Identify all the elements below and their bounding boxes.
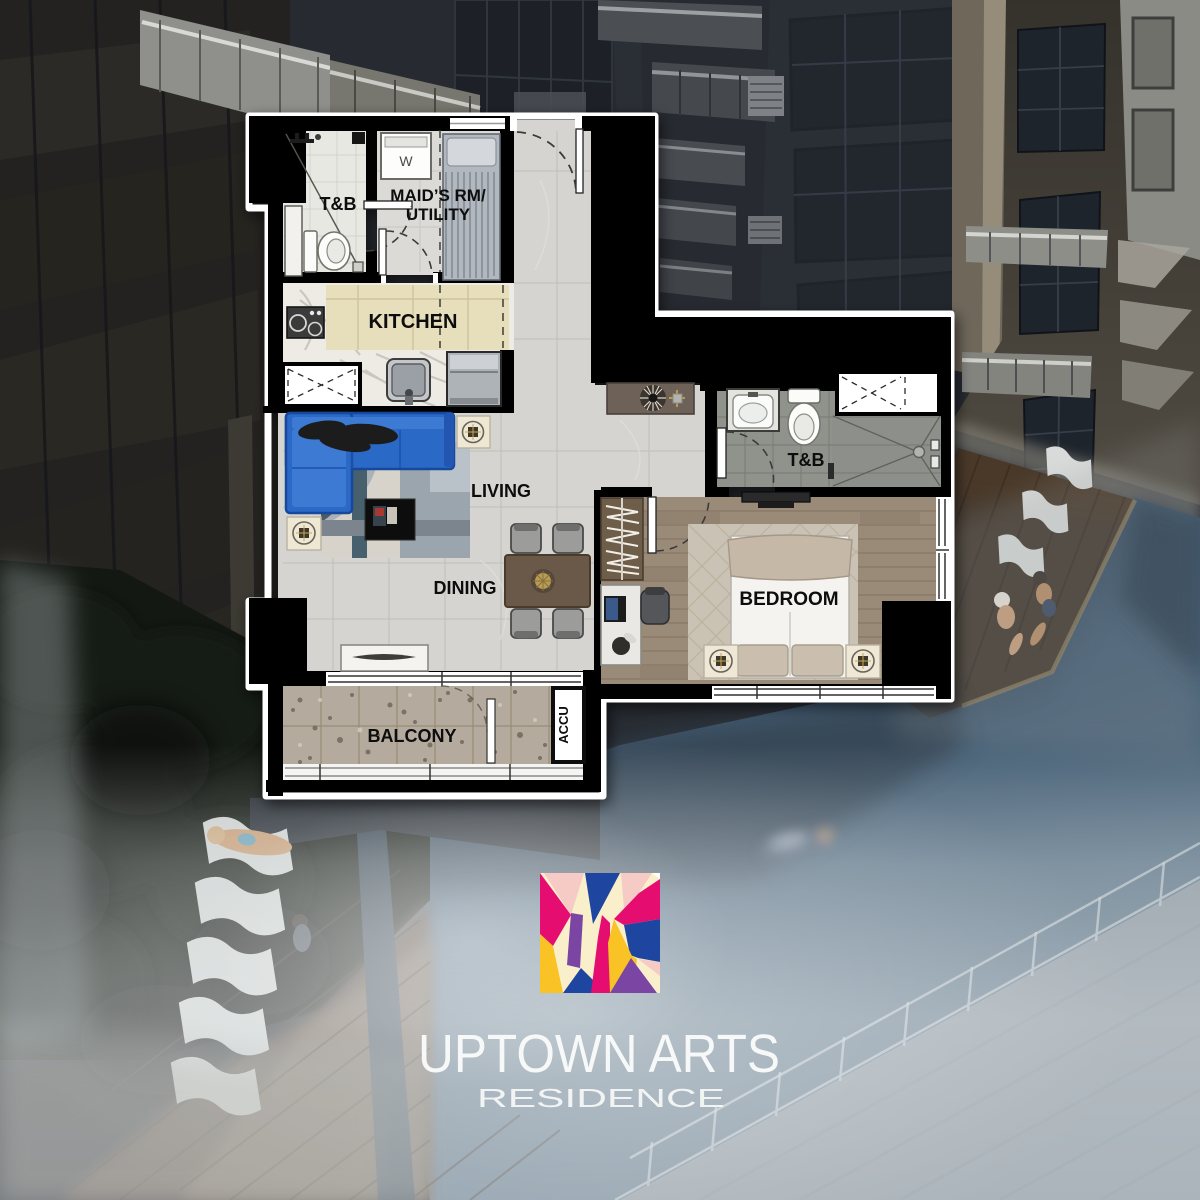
svg-text:BEDROOM: BEDROOM [739, 589, 838, 610]
svg-text:LIVING: LIVING [471, 481, 531, 501]
svg-text:MAID’S RM/: MAID’S RM/ [390, 186, 486, 205]
svg-text:ACCU: ACCU [556, 706, 571, 744]
svg-text:BALCONY: BALCONY [368, 726, 457, 746]
svg-text:T&B: T&B [320, 194, 357, 214]
svg-text:RESIDENCE: RESIDENCE [477, 1083, 725, 1113]
svg-text:T&B: T&B [788, 450, 825, 470]
svg-text:KITCHEN: KITCHEN [369, 311, 458, 333]
svg-text:UTILITY: UTILITY [406, 205, 471, 224]
svg-text:UPTOWN ARTS: UPTOWN ARTS [418, 1024, 780, 1084]
svg-text:W: W [399, 153, 413, 169]
svg-text:DINING: DINING [434, 578, 497, 598]
